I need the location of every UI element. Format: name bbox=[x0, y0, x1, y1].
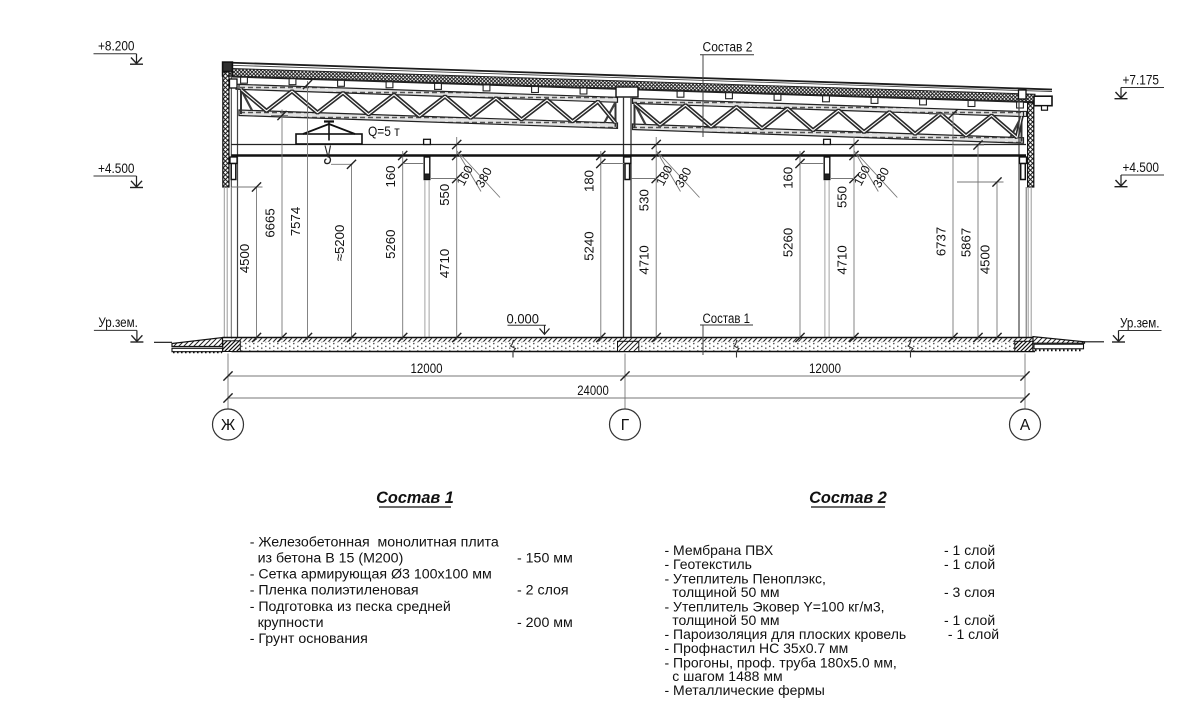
svg-text:+8.200: +8.200 bbox=[98, 38, 135, 54]
svg-text:+4.500: +4.500 bbox=[1123, 159, 1160, 175]
svg-text:5240: 5240 bbox=[581, 231, 596, 260]
svg-text:Состав 2: Состав 2 bbox=[809, 489, 887, 507]
svg-text:550: 550 bbox=[835, 186, 850, 208]
svg-text:4710: 4710 bbox=[437, 249, 452, 278]
svg-text:Q=5 т: Q=5 т bbox=[368, 124, 400, 139]
svg-text:- 200 мм: - 200 мм bbox=[517, 615, 573, 631]
svg-text:12000: 12000 bbox=[411, 361, 443, 376]
svg-text:- 1 слой: - 1 слой bbox=[944, 556, 995, 572]
svg-text:из бетона В 15 (М200): из бетона В 15 (М200) bbox=[250, 550, 404, 566]
svg-text:4710: 4710 bbox=[637, 245, 652, 274]
svg-text:Г: Г bbox=[621, 417, 630, 434]
svg-text:5260: 5260 bbox=[383, 230, 398, 259]
svg-text:160: 160 bbox=[383, 165, 398, 187]
svg-text:160: 160 bbox=[781, 167, 796, 189]
svg-text:4500: 4500 bbox=[978, 245, 993, 274]
svg-text:Ур.зем.: Ур.зем. bbox=[1120, 314, 1160, 330]
svg-text:Состав 1: Состав 1 bbox=[703, 311, 751, 326]
svg-text:+4.500: +4.500 bbox=[98, 160, 135, 176]
svg-text:крупности: крупности bbox=[250, 615, 324, 631]
svg-text:6665: 6665 bbox=[263, 208, 278, 237]
svg-text:0.000: 0.000 bbox=[507, 312, 540, 327]
svg-text:- 2 слоя: - 2 слоя bbox=[517, 583, 569, 599]
svg-text:530: 530 bbox=[637, 189, 652, 211]
svg-text:- Пленка полиэтиленовая: - Пленка полиэтиленовая bbox=[250, 583, 419, 599]
svg-text:- 1 слой: - 1 слой bbox=[944, 626, 999, 642]
svg-text:- 3 слоя: - 3 слоя bbox=[944, 584, 995, 600]
svg-text:- Сетка армирующая Ø3 100х100: - Сетка армирующая Ø3 100х100 мм bbox=[250, 567, 492, 583]
svg-text:Ж: Ж bbox=[221, 417, 236, 434]
svg-text:180: 180 bbox=[581, 170, 596, 192]
svg-text:12000: 12000 bbox=[809, 361, 841, 376]
svg-text:- Железобетонная монолитная п: - Железобетонная монолитная плита bbox=[250, 534, 499, 550]
svg-text:+7.175: +7.175 bbox=[1123, 71, 1160, 87]
svg-text:- Грунт основания: - Грунт основания bbox=[250, 631, 368, 647]
svg-text:6737: 6737 bbox=[934, 227, 949, 256]
svg-text:- 150 мм: - 150 мм bbox=[517, 550, 573, 566]
svg-text:550: 550 bbox=[437, 184, 452, 206]
svg-text:4710: 4710 bbox=[835, 245, 850, 274]
svg-text:Состав 2: Состав 2 bbox=[703, 39, 753, 54]
svg-text:≈5200: ≈5200 bbox=[332, 225, 347, 262]
svg-text:5867: 5867 bbox=[959, 228, 974, 257]
svg-text:7574: 7574 bbox=[288, 207, 303, 236]
svg-text:Ур.зем.: Ур.зем. bbox=[98, 314, 137, 330]
svg-text:5260: 5260 bbox=[781, 228, 796, 257]
svg-text:А: А bbox=[1020, 417, 1031, 434]
svg-text:- Подготовка из песка средней: - Подготовка из песка средней bbox=[250, 599, 451, 615]
svg-text:Состав 1: Состав 1 bbox=[376, 489, 454, 507]
svg-text:- Металлические фермы: - Металлические фермы bbox=[665, 682, 825, 698]
svg-text:4500: 4500 bbox=[237, 244, 252, 273]
svg-text:24000: 24000 bbox=[577, 383, 609, 398]
